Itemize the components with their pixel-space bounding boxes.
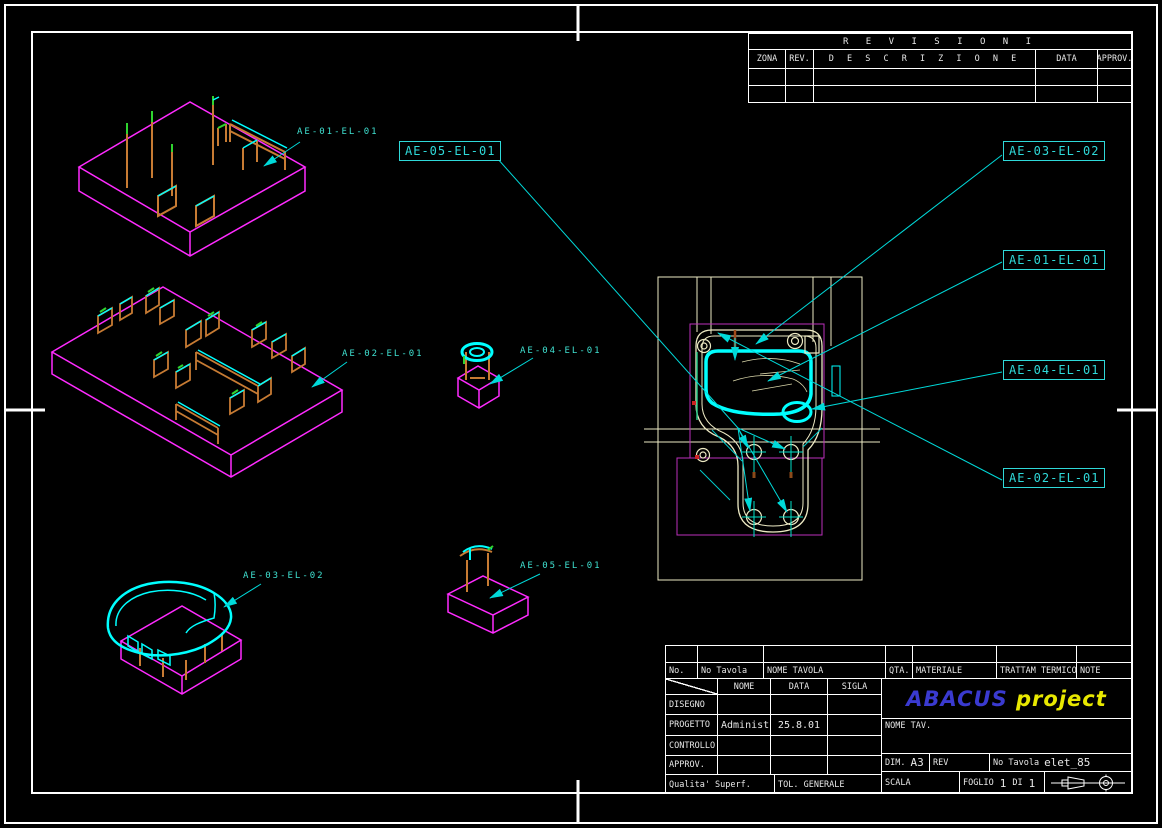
foglio-label: FOGLIO: [963, 778, 994, 788]
progetto-nome-value: Administra: [718, 715, 771, 735]
approval-grid: NOME DATA SIGLA DISEGNO PROGETTO Adminis…: [666, 679, 882, 794]
di-label: DI: [1012, 778, 1022, 788]
iso-view-ae-05-part: [448, 546, 528, 633]
dim-value: A3: [910, 756, 923, 769]
parts-list-empty-row: [666, 646, 1131, 663]
nome-tav-label: NOME TAV.: [882, 719, 1131, 753]
iso-view-ae-02-board: [52, 287, 342, 477]
col-no: No.: [666, 663, 698, 678]
no-tavola-label: No Tavola: [993, 758, 1039, 768]
revisions-empty-row: [749, 86, 1131, 103]
row-progetto: PROGETTO: [666, 715, 718, 735]
company-logo: ABACUS project: [906, 687, 1107, 711]
col-qta: QTA.: [886, 663, 913, 678]
components-orange: [98, 288, 305, 444]
col-note: NOTE: [1077, 663, 1131, 678]
rev-cell: REV: [930, 754, 990, 771]
leader-ae03: [756, 155, 1002, 344]
col-no-tavola: No Tavola: [698, 663, 764, 678]
leader-ae05-main: [497, 158, 738, 428]
col-nome-tavola: NOME TAVOLA: [764, 663, 886, 678]
revisions-title: R E V I S I O N I: [749, 34, 1131, 50]
title-block: No. No Tavola NOME TAVOLA QTA. MATERIALE…: [665, 645, 1132, 793]
dim-cell: DIM. A3: [882, 754, 930, 771]
revisions-col-approv: APPROV.: [1098, 50, 1131, 68]
sheet-info: ABACUS project NOME TAV. DIM. A3 REV No …: [882, 679, 1131, 794]
components-green: [127, 96, 226, 152]
row-controllo: CONTROLLO: [666, 736, 718, 755]
leader-ae01: [768, 262, 1002, 381]
cad-drawing-sheet: AE-05-EL-01 AE-03-EL-02 AE-01-EL-01 AE-0…: [0, 0, 1162, 828]
progetto-data-value: 25.8.01: [771, 715, 828, 735]
parts-list-header-row: No. No Tavola NOME TAVOLA QTA. MATERIALE…: [666, 663, 1131, 679]
col-materiale: MATERIALE: [913, 663, 997, 678]
iso-view-ae-04-part: [458, 344, 499, 409]
iso-view-ae-01-board: [79, 96, 305, 256]
dim-label: DIM.: [885, 758, 905, 768]
tol-generale-label: TOL. GENERALE: [775, 775, 881, 794]
revisions-col-rev: REV.: [786, 50, 814, 68]
diagonal-cell: [666, 679, 718, 694]
revisions-col-data: DATA: [1036, 50, 1098, 68]
revisions-header-row: ZONA REV. D E S C R I Z I O N E DATA APP…: [749, 50, 1131, 69]
assembly-top-view: [644, 277, 880, 580]
display-window: [706, 351, 811, 414]
iso-label-ae-02-el-01[interactable]: AE-02-EL-01: [342, 349, 424, 359]
revisions-col-descrizione: D E S C R I Z I O N E: [814, 50, 1036, 68]
leader-iso-ae04: [490, 358, 533, 384]
brand-row: ABACUS project: [882, 679, 1131, 719]
components-green: [100, 288, 262, 394]
components-orange: [127, 105, 285, 226]
scala-cell: SCALA: [882, 772, 960, 794]
col-data: DATA: [771, 679, 828, 694]
part-label-ae-03-el-02[interactable]: AE-03-EL-02: [1003, 141, 1105, 161]
part-label-ae-02-el-01[interactable]: AE-02-EL-01: [1003, 468, 1105, 488]
iso-view-ae-03-shell: [108, 582, 241, 694]
row-disegno: DISEGNO: [666, 695, 718, 714]
foglio-number: 1: [1000, 777, 1007, 790]
housing-inner-outline: [702, 336, 816, 526]
revisions-empty-row: [749, 69, 1131, 86]
iso-label-ae-01-el-01[interactable]: AE-01-EL-01: [297, 127, 379, 137]
revisions-col-zona: ZONA: [749, 50, 786, 68]
iso-label-ae-05-el-01[interactable]: AE-05-EL-01: [520, 561, 602, 571]
iso-label-ae-04-el-01[interactable]: AE-04-EL-01: [520, 346, 602, 356]
projection-symbol-cell: [1045, 772, 1131, 794]
company-logo-abacus: ABACUS: [906, 687, 1007, 711]
first-angle-projection-icon: [1048, 773, 1128, 793]
foglio-cell: FOGLIO 1 DI 1: [960, 772, 1045, 794]
company-logo-project: project: [1016, 687, 1107, 711]
row-approv: APPROV.: [666, 756, 718, 774]
revisions-table: R E V I S I O N I ZONA REV. D E S C R I …: [748, 33, 1132, 103]
leader-iso-ae03: [224, 584, 261, 607]
col-trattam-termico: TRATTAM TERMICO: [997, 663, 1077, 678]
part-label-ae-04-el-01[interactable]: AE-04-EL-01: [1003, 360, 1105, 380]
qualita-superf-label: Qualita' Superf.: [666, 775, 775, 794]
foglio-total: 1: [1029, 777, 1036, 790]
no-tavola-cell: No Tavola elet_85: [990, 754, 1131, 771]
no-tavola-value: elet_85: [1044, 756, 1090, 769]
iso-label-ae-03-el-02[interactable]: AE-03-EL-02: [243, 571, 325, 581]
part-label-ae-01-el-01[interactable]: AE-01-EL-01: [1003, 250, 1105, 270]
col-nome: NOME: [718, 679, 771, 694]
col-sigla: SIGLA: [828, 679, 881, 694]
leader-lines: [224, 142, 1002, 607]
leader-iso-ae05: [490, 574, 540, 598]
part-label-ae-05-el-01[interactable]: AE-05-EL-01: [399, 141, 501, 161]
components-cyan: [158, 97, 287, 206]
